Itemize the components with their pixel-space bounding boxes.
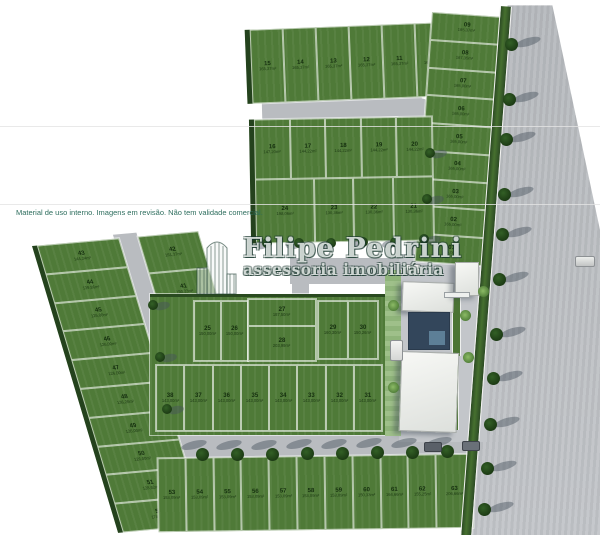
- lot-30[interactable]: 30150,26m²: [348, 301, 378, 359]
- lot-number: 38: [167, 393, 174, 399]
- lot-area: 165,37m²: [292, 65, 309, 70]
- lot-area: 153,09m²: [247, 495, 264, 499]
- lot-number: 26: [231, 326, 238, 332]
- lot-number: 32: [336, 393, 343, 399]
- lot-area: 143,00m²: [274, 399, 291, 403]
- lot-row-31-38: 38143,00m²37143,00m²36143,00m²35143,00m²…: [156, 365, 382, 431]
- tree-icon: [503, 93, 516, 106]
- lot-area: 198,06m²: [276, 212, 293, 216]
- lot-area: 126,00m²: [134, 457, 152, 463]
- lot-number: 33: [308, 393, 315, 399]
- tree-icon: [266, 448, 279, 461]
- tree-icon: [155, 352, 165, 362]
- lot-area: 144,24m²: [74, 256, 92, 262]
- tree-icon: [505, 38, 518, 51]
- lot-25[interactable]: 25150,00m²: [194, 301, 221, 361]
- tree-icon: [162, 404, 172, 414]
- tree-icon: [301, 447, 314, 460]
- lot-area: 130,36m²: [405, 210, 422, 214]
- lot-row-29-30: 29160,30m²30150,26m²: [318, 301, 378, 359]
- tree-icon: [231, 448, 244, 461]
- lot-area: 165,37m²: [458, 29, 476, 34]
- lot-area: 143,00m²: [218, 399, 235, 403]
- lot-area: 130,36m²: [325, 211, 342, 215]
- lot-area: 206,66m²: [446, 492, 463, 496]
- lot-area: 143,00m²: [303, 399, 320, 403]
- lot-17[interactable]: 17144,22m²: [290, 118, 327, 179]
- tree-icon: [422, 194, 432, 204]
- lot-area: 143,00m²: [161, 399, 178, 403]
- lot-37[interactable]: 37143,00m²: [184, 365, 212, 431]
- lot-area: 165,00m²: [448, 167, 466, 172]
- lot-number: 37: [195, 393, 202, 399]
- lot-area: 130,36m²: [365, 210, 382, 214]
- lot-21[interactable]: 21130,36m²: [393, 176, 434, 241]
- lot-area: 143,00m²: [190, 399, 207, 403]
- car-white: [575, 256, 595, 267]
- tree-icon: [478, 503, 491, 516]
- lot-area: 153,09m²: [330, 494, 347, 498]
- lot-area: 165,37m²: [358, 63, 375, 68]
- lot-13[interactable]: 13165,37m²: [316, 26, 352, 101]
- lot-area: 150,26m²: [354, 331, 371, 335]
- lot-area: 153,09m²: [163, 496, 180, 500]
- lot-area: 143,00m²: [246, 399, 263, 403]
- lot-number: 36: [223, 393, 230, 399]
- lot-area: 150,00m²: [199, 332, 216, 336]
- lot-area: 126,00m²: [91, 314, 109, 320]
- lot-column-27-28: 27187,50m²28203,99m²: [248, 299, 316, 361]
- lot-26[interactable]: 26150,00m²: [221, 301, 248, 361]
- lot-area: 155,25m²: [414, 492, 431, 496]
- lot-number: 35: [252, 393, 259, 399]
- palm-tree-icon: [460, 310, 471, 321]
- lot-35[interactable]: 35143,00m²: [241, 365, 269, 431]
- main-building: [399, 351, 460, 433]
- lot-row-25-26: 25150,00m²26150,00m²: [194, 301, 248, 361]
- lot-area: 165,37m²: [325, 64, 342, 69]
- pool: [408, 312, 450, 350]
- lot-number: 29: [330, 325, 337, 331]
- lot-area: 165,00m²: [452, 112, 470, 117]
- lot-34[interactable]: 34143,00m²: [269, 365, 297, 431]
- building-icon: [193, 234, 241, 301]
- tree-icon: [196, 448, 209, 461]
- lot-29[interactable]: 29160,30m²: [318, 301, 348, 359]
- lot-31[interactable]: 31143,00m²: [354, 365, 382, 431]
- lot-area: 165,37m²: [259, 67, 276, 72]
- tree-icon: [496, 228, 509, 241]
- tree-icon: [490, 328, 503, 341]
- lot-area: 187,50m²: [273, 313, 290, 317]
- lot-number: 34: [280, 393, 287, 399]
- lot-area: 147,20m²: [264, 150, 281, 154]
- lot-12[interactable]: 12165,37m²: [349, 25, 385, 100]
- lot-28[interactable]: 28203,99m²: [248, 326, 316, 361]
- lot-38[interactable]: 38143,00m²: [156, 365, 184, 431]
- pool-deck: [429, 331, 445, 345]
- lot-area: 165,00m²: [444, 223, 462, 228]
- tree-icon: [441, 445, 454, 458]
- disclaimer-text: Material de uso interno. Imagens em revi…: [16, 208, 263, 217]
- lot-block-top-row: 15165,37m²14165,37m²13165,37m²12165,37m²…: [245, 22, 451, 104]
- lot-area: 126,00m²: [100, 342, 118, 348]
- lot-57[interactable]: 57153,09m²: [269, 456, 298, 530]
- site-plan: 15165,37m²14165,37m²13165,37m²12165,37m²…: [0, 0, 600, 535]
- lot-area: 153,09m²: [275, 494, 292, 498]
- lot-area: 126,00m²: [126, 429, 144, 435]
- palm-tree-icon: [388, 300, 399, 311]
- tree-icon: [493, 273, 506, 286]
- lot-block-central: 25150,00m²26150,00m² 27187,50m²28203,99m…: [150, 294, 386, 435]
- gatehouse: [455, 262, 479, 296]
- lot-11[interactable]: 11165,37m²: [382, 23, 418, 98]
- tree-icon: [371, 446, 384, 459]
- tree-icon: [425, 148, 435, 158]
- lot-area: 144,22m²: [299, 149, 316, 153]
- lot-area: 153,09m²: [191, 495, 208, 499]
- lot-area: 160,30m²: [324, 331, 341, 335]
- lot-area: 150,33m²: [358, 493, 375, 497]
- watermark-subtitle: assessoria imobiliária: [243, 262, 423, 278]
- lot-32[interactable]: 32143,00m²: [326, 365, 354, 431]
- lot-53[interactable]: 53153,09m²: [157, 458, 186, 532]
- lot-area: 165,00m²: [454, 84, 472, 89]
- lot-area: 165,00m²: [450, 140, 468, 145]
- lot-62[interactable]: 62155,25m²: [408, 454, 437, 528]
- lot-54[interactable]: 54153,09m²: [185, 457, 214, 531]
- lot-56[interactable]: 56153,09m²: [241, 457, 270, 531]
- tree-icon: [484, 418, 497, 431]
- lot-14[interactable]: 14165,37m²: [283, 27, 319, 102]
- lot-area: 143,00m²: [359, 399, 376, 403]
- lot-number: 31: [365, 393, 372, 399]
- tree-icon: [336, 447, 349, 460]
- lot-block-bottom-row: 53153,09m²54153,09m²55153,09m²56153,09m²…: [157, 454, 473, 532]
- tree-icon: [481, 462, 494, 475]
- lot-60[interactable]: 60150,33m²: [352, 455, 381, 529]
- lot-area: 144,22m²: [406, 148, 423, 152]
- lot-area: 165,00m²: [446, 195, 464, 200]
- lot-58[interactable]: 58153,09m²: [297, 456, 326, 530]
- palm-tree-icon: [478, 286, 489, 297]
- lot-55[interactable]: 55153,09m²: [213, 457, 242, 531]
- lot-area: 153,09m²: [219, 495, 236, 499]
- entrance-gate: [444, 292, 470, 298]
- van-white: [390, 340, 403, 361]
- lot-area: 164,66m²: [386, 493, 403, 497]
- lot-15[interactable]: 15165,37m²: [250, 28, 286, 103]
- scan-artifact-line: [0, 204, 600, 205]
- lot-36[interactable]: 36143,00m²: [213, 365, 241, 431]
- lot-area: 139,86m²: [83, 285, 101, 291]
- lot-61[interactable]: 61164,66m²: [380, 455, 409, 529]
- tree-icon: [500, 133, 513, 146]
- lot-area: 161,37m²: [165, 253, 183, 259]
- lot-area: 136,26m²: [117, 400, 135, 406]
- lot-number: 30: [360, 325, 367, 331]
- lot-area: 153,09m²: [302, 494, 319, 498]
- tree-icon: [148, 300, 158, 310]
- lot-block-middle: 16147,20m²17144,22m²18144,22m²19144,22m²…: [249, 116, 434, 243]
- lot-area: 144,22m²: [335, 149, 352, 153]
- palm-tree-icon: [463, 352, 474, 363]
- lot-area: 143,00m²: [331, 399, 348, 403]
- lot-59[interactable]: 59153,09m²: [324, 455, 353, 529]
- lot-area: 167,35m²: [456, 56, 474, 61]
- lot-33[interactable]: 33143,00m²: [297, 365, 325, 431]
- lot-number: 25: [204, 326, 211, 332]
- lot-16[interactable]: 16147,20m²: [254, 119, 291, 180]
- lot-area: 144,22m²: [370, 148, 387, 152]
- car-dark: [424, 442, 442, 452]
- tree-icon: [406, 446, 419, 459]
- lot-area: 165,37m²: [391, 62, 408, 67]
- lot-area: 203,99m²: [273, 344, 290, 348]
- lot-27[interactable]: 27187,50m²: [248, 299, 316, 326]
- scan-artifact-line: [0, 126, 600, 127]
- car-dark: [462, 441, 480, 451]
- palm-tree-icon: [388, 382, 399, 393]
- tree-icon: [487, 372, 500, 385]
- tree-icon: [498, 188, 511, 201]
- lot-area: 126,00m²: [108, 371, 126, 377]
- watermark-title: Filipe Pedrini: [243, 236, 423, 262]
- lot-area: 150,00m²: [226, 332, 243, 336]
